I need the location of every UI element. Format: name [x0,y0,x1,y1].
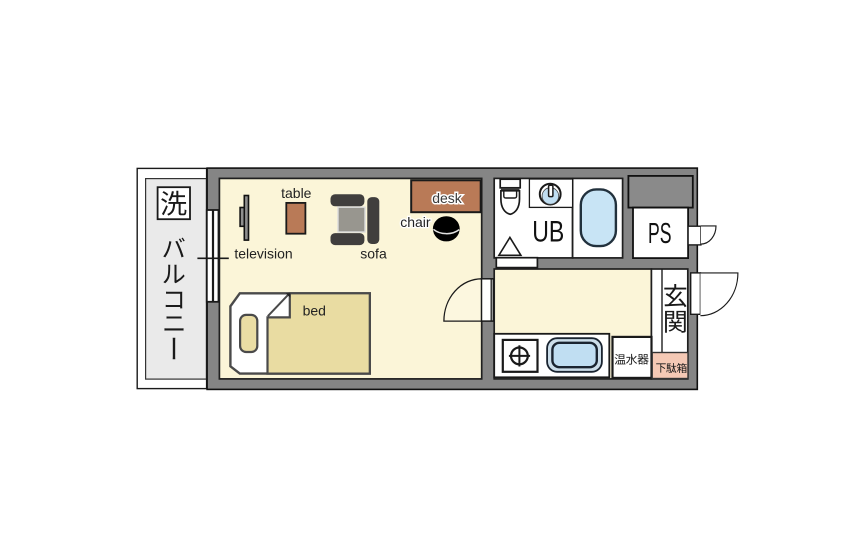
svg-text:UB: UB [532,216,564,249]
svg-text:bed: bed [303,302,326,318]
svg-text:chair: chair [400,214,431,230]
svg-text:PS: PS [648,218,672,250]
svg-text:sofa: sofa [360,245,387,261]
svg-text:television: television [234,245,292,261]
svg-text:desk: desk [432,190,463,206]
svg-text:table: table [281,185,312,201]
